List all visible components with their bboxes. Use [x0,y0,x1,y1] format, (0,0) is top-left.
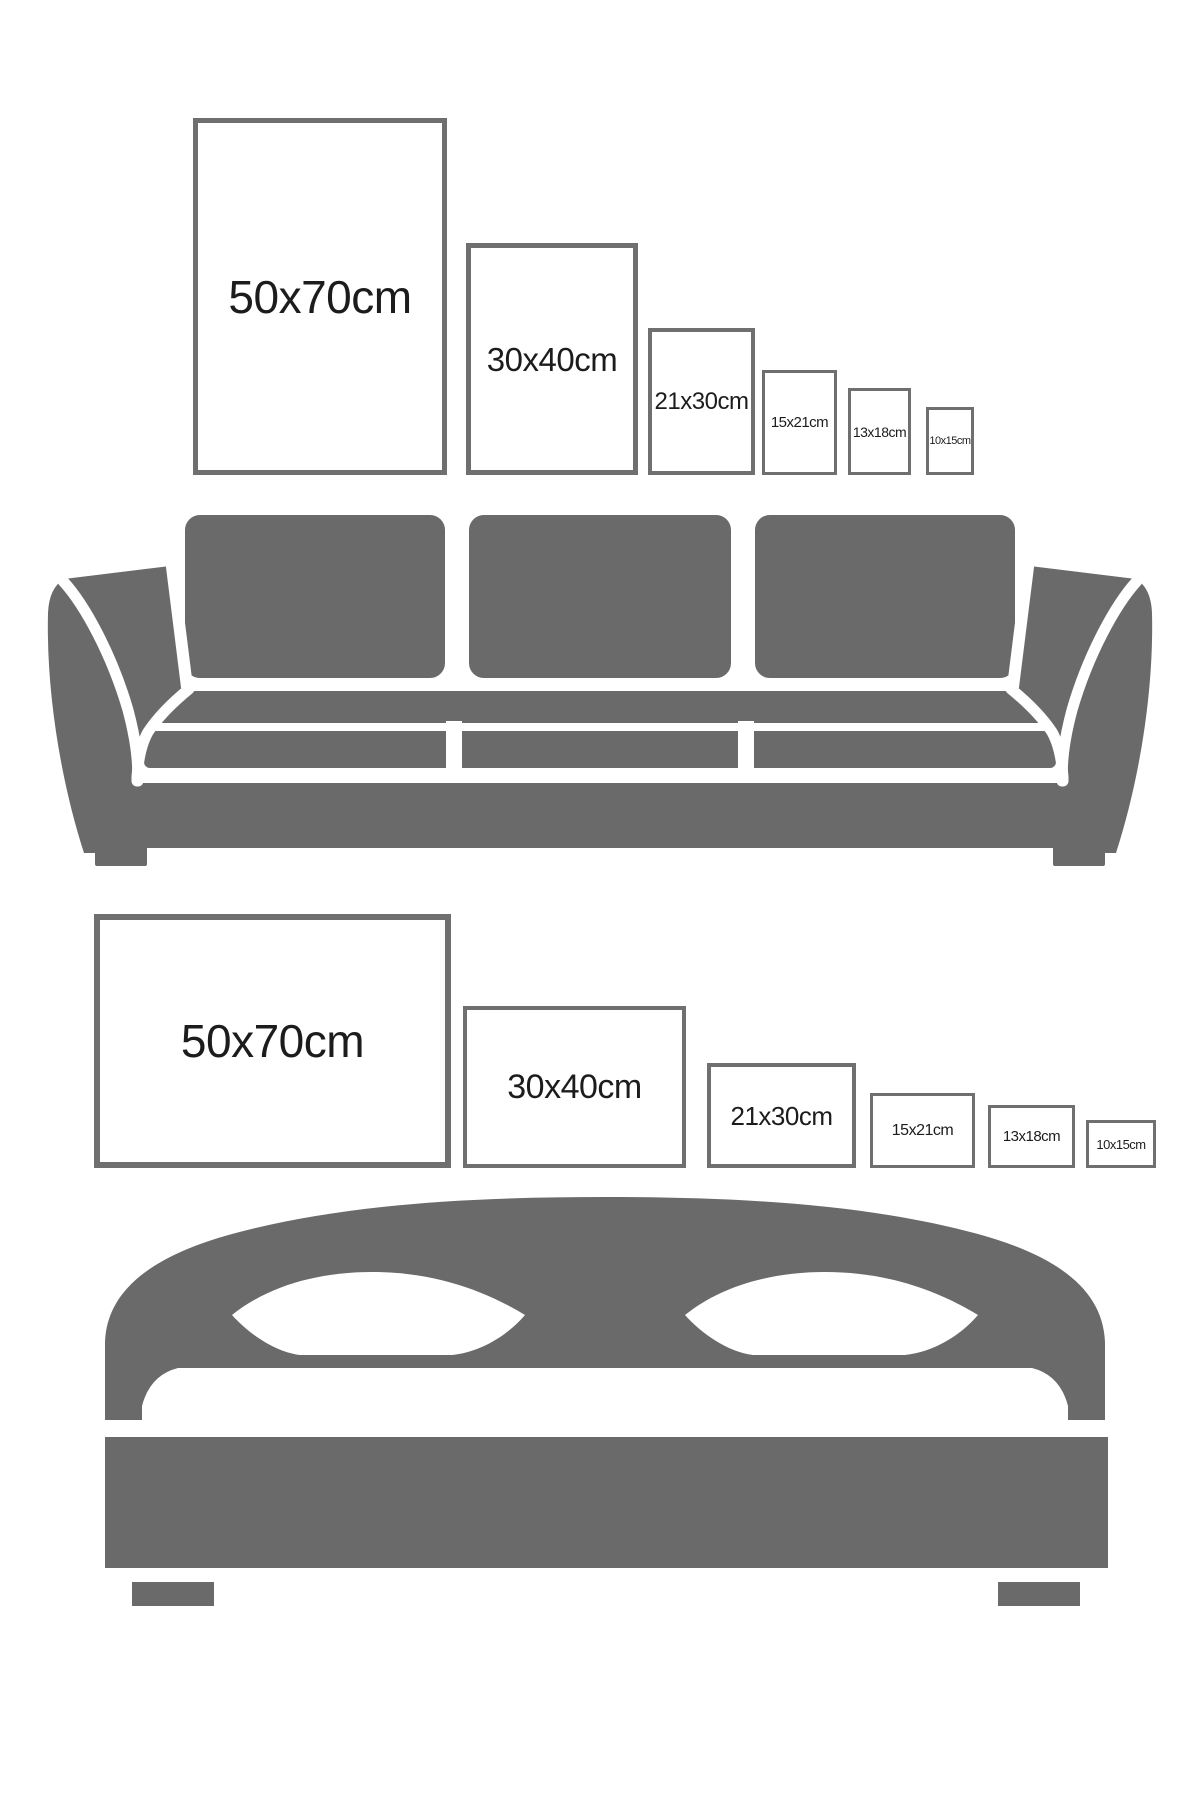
frame-10x15-portrait: 10x15cm [926,407,974,475]
sofa-seat-gap-left [446,721,462,778]
bed-mattress-fillet-right [1032,1368,1068,1406]
frame-size-label: 21x30cm [731,1103,833,1129]
bed-illustration [0,1190,1200,1620]
frame-21x30-portrait: 21x30cm [648,328,755,475]
sofa-seat-gap-right [738,721,754,778]
bed-mattress-fillet-left [142,1368,178,1406]
frame-21x30-landscape: 21x30cm [707,1063,856,1168]
frame-30x40-portrait: 30x40cm [466,243,638,475]
frame-13x18-landscape: 13x18cm [988,1105,1075,1168]
bed-foot-right [998,1582,1080,1606]
bed-base [105,1437,1108,1568]
frame-size-label: 50x70cm [228,274,411,320]
frame-size-label: 13x18cm [1003,1129,1060,1144]
frame-size-label: 15x21cm [771,415,828,430]
size-comparison-diagram: 50x70cm 30x40cm 21x30cm 15x21cm 13x18cm … [0,0,1200,1800]
sofa-seat-deck [138,690,1062,727]
sofa-back-cushion-left [180,510,450,683]
sofa-seat-cushions [140,727,1060,772]
frame-30x40-landscape: 30x40cm [463,1006,686,1168]
frame-15x21-portrait: 15x21cm [762,370,837,475]
sofa-back-cushion-middle [464,510,736,683]
sofa-back-cushion-right [750,510,1020,683]
sofa-cushion-gap-line [170,682,1030,691]
frame-size-label: 30x40cm [507,1070,641,1104]
frame-size-label: 10x15cm [1096,1138,1145,1151]
frame-size-label: 13x18cm [853,425,906,439]
frame-50x70-landscape: 50x70cm [94,914,451,1168]
bed-foot-left [132,1582,214,1606]
frame-15x21-landscape: 15x21cm [870,1093,975,1168]
frame-50x70-portrait: 50x70cm [193,118,447,475]
frame-size-label: 10x15cm [929,436,970,447]
frame-10x15-landscape: 10x15cm [1086,1120,1156,1168]
sofa-base [106,783,1094,848]
sofa-illustration [0,485,1200,885]
frame-size-label: 15x21cm [892,1123,953,1139]
frame-13x18-portrait: 13x18cm [848,388,911,475]
frame-size-label: 30x40cm [487,343,617,376]
frame-size-label: 50x70cm [181,1018,364,1064]
frame-size-label: 21x30cm [655,390,749,414]
